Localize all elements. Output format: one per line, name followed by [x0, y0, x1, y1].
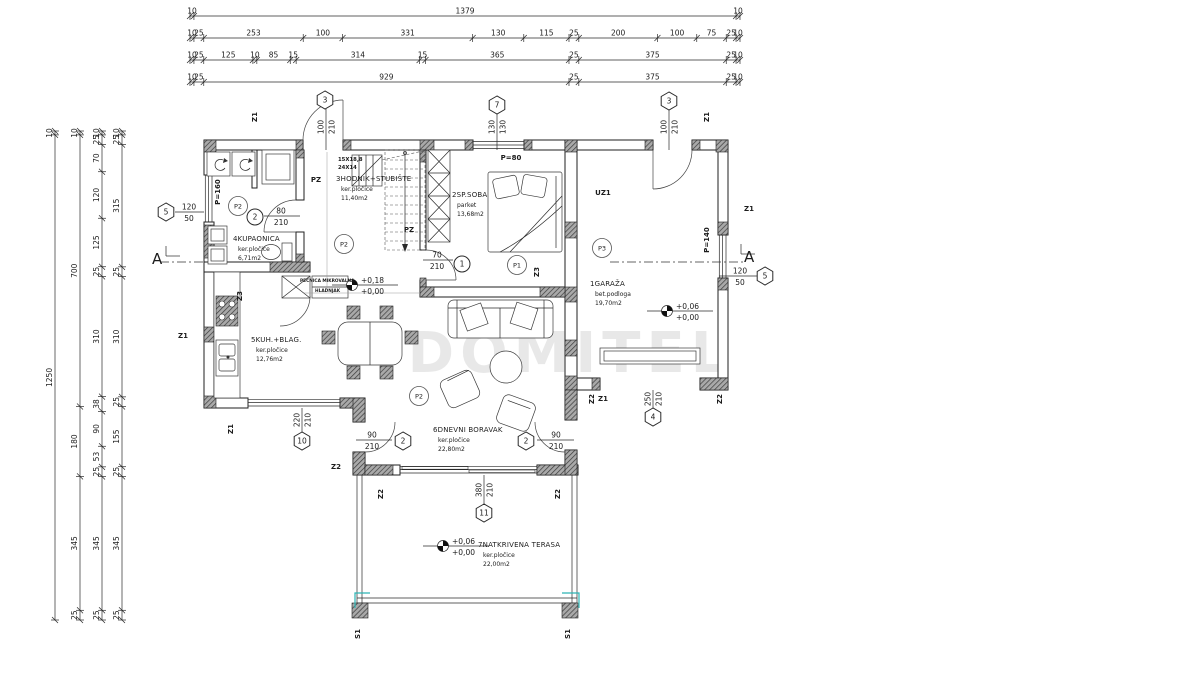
svg-text:P2: P2 — [340, 240, 348, 248]
svg-text:2SP.SOBA: 2SP.SOBA — [452, 191, 487, 199]
floor-type-tag: P2 — [335, 235, 354, 254]
svg-text:13,68m2: 13,68m2 — [457, 211, 484, 218]
svg-text:25: 25 — [92, 135, 101, 145]
svg-text:100: 100 — [660, 120, 669, 135]
svg-text:25: 25 — [569, 29, 579, 38]
svg-text:200: 200 — [611, 29, 626, 38]
opening-dimension: 90210 — [356, 431, 392, 452]
svg-text:+0,06: +0,06 — [676, 302, 699, 311]
door-marker: 2 — [247, 209, 263, 225]
window-door-marker: 7 — [489, 96, 505, 114]
svg-text:Z1: Z1 — [178, 332, 188, 340]
svg-text:25: 25 — [194, 51, 204, 60]
svg-text:24X14: 24X14 — [338, 165, 357, 171]
svg-text:10: 10 — [297, 437, 307, 446]
svg-text:15X18,8: 15X18,8 — [338, 157, 363, 163]
svg-text:22,00m2: 22,00m2 — [483, 561, 510, 568]
terrace-column-s1-right — [562, 603, 578, 618]
svg-text:210: 210 — [274, 218, 289, 227]
svg-text:25: 25 — [194, 29, 204, 38]
svg-text:S1: S1 — [564, 629, 572, 639]
room-label: 1GARAŽAbet.podloga19,70m2 — [590, 279, 631, 307]
room-label: 2SP.SOBAparket13,68m2 — [452, 191, 487, 218]
svg-text:Z1: Z1 — [703, 112, 711, 122]
svg-text:P2: P2 — [415, 392, 423, 400]
svg-text:ker.pločice: ker.pločice — [256, 347, 288, 354]
floor-type-tag: P2 — [410, 387, 429, 406]
window-door-marker: 10 — [294, 432, 310, 450]
svg-text:5: 5 — [763, 272, 768, 281]
svg-text:5KUH.+BLAG.: 5KUH.+BLAG. — [251, 336, 302, 344]
window-door-marker: 4 — [645, 408, 661, 426]
svg-text:929: 929 — [379, 73, 394, 82]
svg-text:75: 75 — [707, 29, 717, 38]
svg-text:Z1: Z1 — [251, 112, 259, 122]
svg-text:5: 5 — [164, 208, 169, 217]
svg-text:7: 7 — [495, 101, 500, 110]
window-door-marker: 11 — [476, 504, 492, 522]
svg-text:10: 10 — [733, 29, 743, 38]
svg-text:25: 25 — [569, 51, 579, 60]
svg-text:210: 210 — [430, 262, 445, 271]
svg-text:90: 90 — [367, 431, 377, 440]
svg-text:4: 4 — [651, 413, 656, 422]
svg-text:380: 380 — [475, 483, 484, 498]
svg-text:P3: P3 — [598, 244, 606, 252]
svg-text:210: 210 — [671, 120, 680, 135]
svg-text:253: 253 — [246, 29, 261, 38]
svg-text:4KUPAONICA: 4KUPAONICA — [233, 235, 280, 243]
svg-text:P=80: P=80 — [501, 154, 522, 162]
bedroom-wardrobe — [428, 150, 450, 242]
svg-text:314: 314 — [351, 51, 366, 60]
svg-text:10: 10 — [733, 7, 743, 16]
svg-text:11: 11 — [479, 509, 489, 518]
svg-text:310: 310 — [92, 329, 101, 344]
svg-text:2: 2 — [524, 437, 529, 446]
window-door-marker: 3 — [317, 91, 333, 109]
svg-text:345: 345 — [70, 536, 79, 551]
svg-text:3HODNIK+STUBIŠTE: 3HODNIK+STUBIŠTE — [336, 174, 411, 183]
svg-text:Z1: Z1 — [598, 395, 608, 403]
svg-text:1GARAŽA: 1GARAŽA — [590, 279, 625, 288]
svg-text:P2: P2 — [234, 202, 242, 210]
svg-text:70: 70 — [432, 251, 442, 260]
laundry-appliances — [207, 150, 294, 184]
opening-dimension-rotated: 130130 — [488, 114, 508, 150]
svg-text:220: 220 — [293, 413, 302, 428]
sofa — [448, 300, 553, 338]
window-door-marker: 5 — [757, 267, 773, 285]
svg-text:Z3: Z3 — [236, 291, 244, 301]
svg-text:25: 25 — [112, 397, 121, 407]
svg-text:345: 345 — [112, 536, 121, 551]
svg-text:3: 3 — [667, 97, 672, 106]
opening-dimension-rotated: 250210 — [644, 390, 664, 408]
svg-text:10: 10 — [733, 73, 743, 82]
svg-text:120: 120 — [92, 188, 101, 203]
svg-text:120: 120 — [182, 203, 197, 212]
svg-text:Z2: Z2 — [331, 463, 341, 471]
svg-text:15: 15 — [418, 51, 428, 60]
svg-text:6,71m2: 6,71m2 — [238, 255, 261, 262]
svg-text:210: 210 — [549, 442, 564, 451]
svg-text:Z2: Z2 — [716, 394, 724, 404]
svg-text:375: 375 — [645, 51, 660, 60]
svg-text:ker.pločice: ker.pločice — [341, 186, 373, 193]
svg-text:331: 331 — [400, 29, 415, 38]
svg-text:50: 50 — [735, 278, 745, 287]
level-marker: +0,06+0,00 — [647, 302, 713, 322]
svg-text:25: 25 — [112, 610, 121, 620]
svg-text:25: 25 — [92, 610, 101, 620]
svg-text:+0,00: +0,00 — [361, 287, 384, 296]
garage-door-leaf — [600, 348, 700, 364]
svg-text:120: 120 — [733, 267, 748, 276]
section-label-left: A — [152, 250, 163, 268]
bed — [488, 172, 562, 252]
svg-text:210: 210 — [655, 392, 664, 407]
svg-text:80: 80 — [276, 207, 286, 216]
svg-text:2: 2 — [401, 437, 406, 446]
svg-text:+0,18: +0,18 — [361, 276, 384, 285]
svg-text:375: 375 — [645, 73, 660, 82]
opening-dimension-rotated: 380210 — [475, 475, 495, 504]
svg-text:70: 70 — [92, 153, 101, 163]
svg-text:10: 10 — [187, 7, 197, 16]
svg-text:25: 25 — [92, 467, 101, 477]
floor-type-tag: P1 — [508, 256, 527, 275]
room-label: 5KUH.+BLAG.ker.pločice12,76m2 — [251, 336, 302, 363]
svg-text:210: 210 — [304, 413, 313, 428]
room-label: 7NATKRIVENA TERASAker.pločice22,00m2 — [478, 541, 560, 568]
coffee-table — [490, 351, 522, 383]
svg-text:345: 345 — [92, 536, 101, 551]
svg-text:130: 130 — [499, 120, 508, 135]
svg-text:3: 3 — [323, 96, 328, 105]
svg-text:10: 10 — [733, 51, 743, 60]
room-label: 6DNEVNI BORAVAKker.pločice22,80m2 — [433, 426, 503, 453]
svg-text:P=160: P=160 — [214, 179, 222, 205]
door-marker: 1 — [454, 256, 470, 272]
svg-text:Z2: Z2 — [377, 489, 385, 499]
svg-text:155: 155 — [112, 429, 121, 444]
svg-text:parket: parket — [457, 202, 477, 209]
svg-text:ker.pločice: ker.pločice — [483, 552, 515, 559]
floor-type-tag: P2 — [229, 197, 248, 216]
svg-text:85: 85 — [269, 51, 279, 60]
svg-text:12,76m2: 12,76m2 — [256, 356, 283, 363]
svg-text:UZ1: UZ1 — [595, 189, 611, 197]
svg-text:25: 25 — [70, 610, 79, 620]
opening-dimension: 90210 — [537, 431, 574, 452]
svg-text:Z1: Z1 — [227, 424, 235, 434]
svg-text:PEĆNICA MIKROVALNA: PEĆNICA MIKROVALNA — [300, 277, 355, 284]
svg-text:25: 25 — [112, 135, 121, 145]
svg-text:S1: S1 — [354, 629, 362, 639]
svg-text:25: 25 — [569, 73, 579, 82]
window-door-marker: 3 — [661, 92, 677, 110]
dimension-lines: 1013791010252531003311301152520010075251… — [45, 7, 743, 624]
svg-text:125: 125 — [221, 51, 236, 60]
svg-text:ker.pločice: ker.pločice — [238, 246, 270, 253]
svg-text:1379: 1379 — [455, 7, 474, 16]
svg-text:100: 100 — [316, 29, 331, 38]
opening-dimension: 12050 — [175, 203, 204, 224]
opening-dimension-rotated: 100210 — [660, 110, 680, 150]
svg-text:10: 10 — [70, 128, 79, 138]
svg-text:+0,00: +0,00 — [676, 313, 699, 322]
svg-text:1250: 1250 — [45, 368, 54, 387]
svg-text:P=140: P=140 — [703, 227, 711, 253]
svg-text:315: 315 — [112, 198, 121, 213]
svg-text:P1: P1 — [513, 261, 521, 269]
svg-text:2: 2 — [253, 213, 258, 222]
svg-text:53: 53 — [92, 452, 101, 462]
svg-text:310: 310 — [112, 329, 121, 344]
svg-text:19,70m2: 19,70m2 — [595, 300, 622, 307]
svg-text:ker.pločice: ker.pločice — [438, 437, 470, 444]
svg-text:90: 90 — [551, 431, 561, 440]
svg-text:115: 115 — [539, 29, 554, 38]
svg-text:7NATKRIVENA TERASA: 7NATKRIVENA TERASA — [478, 541, 560, 549]
svg-text:90: 90 — [92, 424, 101, 434]
opening-dimension-rotated: 220210 — [293, 408, 313, 432]
svg-text:365: 365 — [490, 51, 505, 60]
svg-text:125: 125 — [92, 235, 101, 250]
svg-text:bet.podloga: bet.podloga — [595, 291, 631, 298]
opening-dimension: 70210 — [423, 251, 453, 272]
svg-text:PZ: PZ — [311, 176, 321, 184]
svg-text:PZ: PZ — [404, 226, 414, 234]
svg-text:210: 210 — [486, 483, 495, 498]
svg-text:1: 1 — [460, 260, 465, 269]
svg-text:10: 10 — [45, 128, 54, 138]
svg-text:25: 25 — [112, 467, 121, 477]
svg-text:210: 210 — [328, 120, 337, 135]
svg-text:11,40m2: 11,40m2 — [341, 195, 368, 202]
svg-text:25: 25 — [194, 73, 204, 82]
svg-text:+0,06: +0,06 — [452, 537, 475, 546]
svg-text:25: 25 — [92, 267, 101, 277]
window-door-marker: 5 — [158, 203, 174, 221]
window-door-marker: 2 — [518, 432, 534, 450]
svg-text:22,80m2: 22,80m2 — [438, 446, 465, 453]
section-label-right: A — [744, 248, 755, 266]
svg-text:130: 130 — [488, 120, 497, 135]
svg-text:180: 180 — [70, 434, 79, 449]
svg-text:100: 100 — [317, 120, 326, 135]
svg-text:50: 50 — [184, 214, 194, 223]
floor-plan-page: DOMITEL — [0, 0, 1200, 674]
opening-dimension-rotated: 100210 — [317, 109, 337, 150]
svg-text:100: 100 — [670, 29, 685, 38]
svg-text:210: 210 — [365, 442, 380, 451]
window-door-marker: 2 — [395, 432, 411, 450]
svg-text:10: 10 — [250, 51, 260, 60]
svg-text:38: 38 — [92, 399, 101, 409]
svg-text:250: 250 — [644, 392, 653, 407]
svg-text:+0,00: +0,00 — [452, 548, 475, 557]
svg-text:Z1: Z1 — [744, 205, 754, 213]
floor-type-tag: P3 — [593, 239, 612, 258]
svg-text:25: 25 — [112, 267, 121, 277]
svg-text:Z2: Z2 — [588, 394, 596, 404]
svg-text:6DNEVNI BORAVAK: 6DNEVNI BORAVAK — [433, 426, 503, 434]
svg-text:Z2: Z2 — [554, 489, 562, 499]
svg-text:130: 130 — [491, 29, 506, 38]
svg-text:700: 700 — [70, 263, 79, 278]
svg-text:Z3: Z3 — [533, 267, 541, 277]
svg-text:15: 15 — [288, 51, 298, 60]
floor-plan-drawing: DOMITEL — [0, 0, 1200, 674]
dining-set — [322, 306, 418, 379]
opening-dimension: 80210 — [264, 207, 300, 228]
room-label: 3HODNIK+STUBIŠTEker.pločice11,40m2 — [336, 174, 411, 202]
svg-text:HLADNJAK: HLADNJAK — [315, 288, 341, 294]
